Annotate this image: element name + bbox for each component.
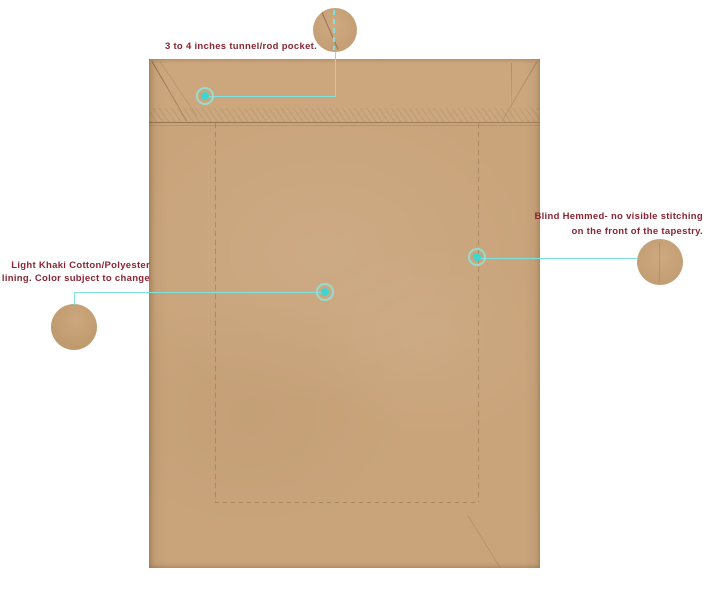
marker-dot-icon xyxy=(473,253,481,261)
swatch-seam-line xyxy=(659,242,660,282)
blind-hem-label-line1: Blind Hemmed- no visible stitching xyxy=(534,209,703,224)
side-hem-stitch-right xyxy=(478,123,479,502)
rod-pocket-leader-line-v xyxy=(335,52,336,97)
lining-label: Light Khaki Cotton/Polyester lining. Col… xyxy=(0,260,150,285)
rod-pocket-dashed-leader xyxy=(333,10,335,50)
fabric-crease xyxy=(511,63,512,121)
lining-detail-swatch xyxy=(51,304,97,350)
fabric-crease xyxy=(468,515,501,567)
blind-hem-leader-line xyxy=(477,258,638,259)
blind-hem-label-line2: on the front of the tapestry. xyxy=(534,224,703,239)
rod-pocket-seam-shadow xyxy=(149,125,540,126)
blind-hem-marker xyxy=(468,248,486,266)
side-hem-stitch-left xyxy=(215,123,216,502)
blind-hem-label: Blind Hemmed- no visible stitching on th… xyxy=(534,209,703,239)
rod-pocket-leader-line-h xyxy=(205,96,336,97)
rod-pocket-stitch-band xyxy=(150,108,539,122)
lining-label-line1: Light Khaki Cotton/Polyester xyxy=(0,260,150,273)
lining-leader-line-h xyxy=(74,292,326,293)
lining-marker xyxy=(316,283,334,301)
marker-dot-icon xyxy=(201,92,209,100)
tapestry-spec-diagram: 3 to 4 inches tunnel/rod pocket. Blind H… xyxy=(0,0,706,600)
blind-hem-detail-swatch xyxy=(637,239,683,285)
lining-label-line2: lining. Color subject to change xyxy=(0,273,150,286)
rod-pocket-marker xyxy=(196,87,214,105)
lining-leader-line-v xyxy=(74,292,75,305)
bottom-hem-stitch xyxy=(215,502,478,503)
rod-pocket-label: 3 to 4 inches tunnel/rod pocket. xyxy=(155,40,327,53)
marker-dot-icon xyxy=(321,288,329,296)
rod-pocket-seam-line xyxy=(149,122,540,123)
tapestry-back-panel xyxy=(149,59,540,568)
